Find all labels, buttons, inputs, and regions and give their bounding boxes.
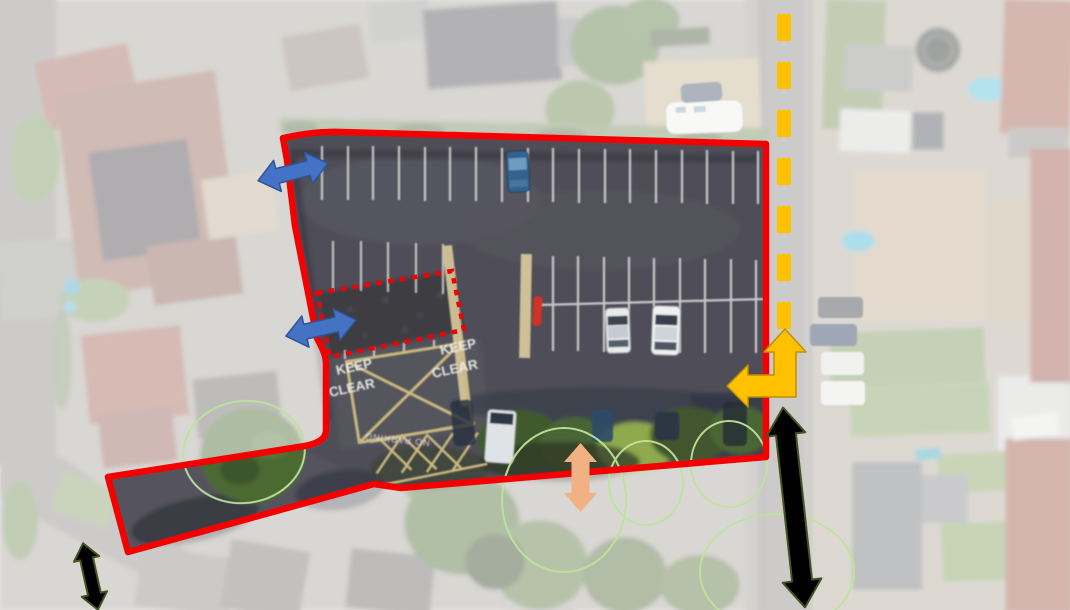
parked-van-white [484, 409, 517, 464]
parked-car-white-2 [651, 306, 681, 356]
aerial-site-plan: KEEP CLEAR KEEP CLEAR NO PARKING [0, 0, 1070, 610]
parked-car-white-1 [605, 308, 631, 354]
red-object [532, 296, 543, 326]
kerb-strip [519, 254, 532, 358]
parked-car-blue [506, 150, 530, 192]
parked-car-dark [450, 399, 476, 447]
parked-car-dark [655, 412, 679, 440]
